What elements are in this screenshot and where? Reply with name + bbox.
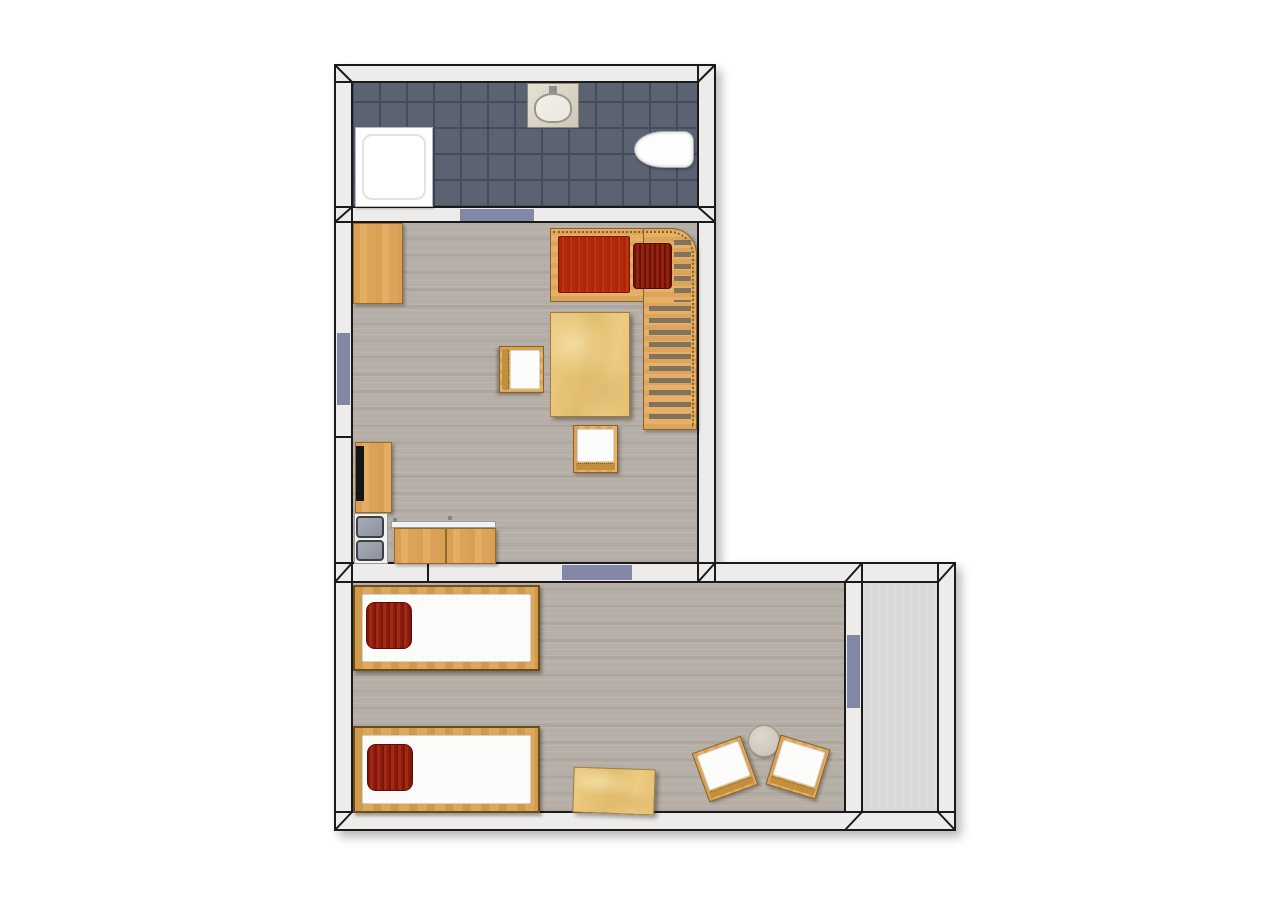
corner-bench-slats [649, 306, 691, 424]
apartment-floor-plan [0, 0, 1280, 900]
bench-cushion [633, 243, 672, 289]
counter-right [446, 528, 496, 564]
bathroom-sink [527, 83, 579, 128]
desk [353, 223, 403, 304]
bed-1-pillow [366, 602, 412, 649]
counter-knob-2 [448, 516, 452, 520]
toilet [634, 131, 694, 168]
bench-mattress [558, 236, 630, 293]
floor-plan-page [0, 0, 1280, 900]
bedroom-table [572, 767, 656, 816]
appliance-door-top [356, 516, 384, 538]
furniture-layer [0, 0, 1280, 900]
living-table [550, 312, 630, 417]
living-chair-1 [499, 346, 544, 393]
counter-left [394, 528, 446, 564]
appliance-door-bottom [356, 540, 384, 561]
living-chair-2 [573, 425, 618, 473]
counter-knob-1 [393, 518, 397, 522]
corner-bench-slats-top [674, 240, 691, 302]
shower-tray [355, 127, 433, 207]
counter-back-edge [391, 521, 496, 528]
kitchen-tv-panel [356, 446, 364, 501]
bed-2-pillow [367, 744, 413, 791]
